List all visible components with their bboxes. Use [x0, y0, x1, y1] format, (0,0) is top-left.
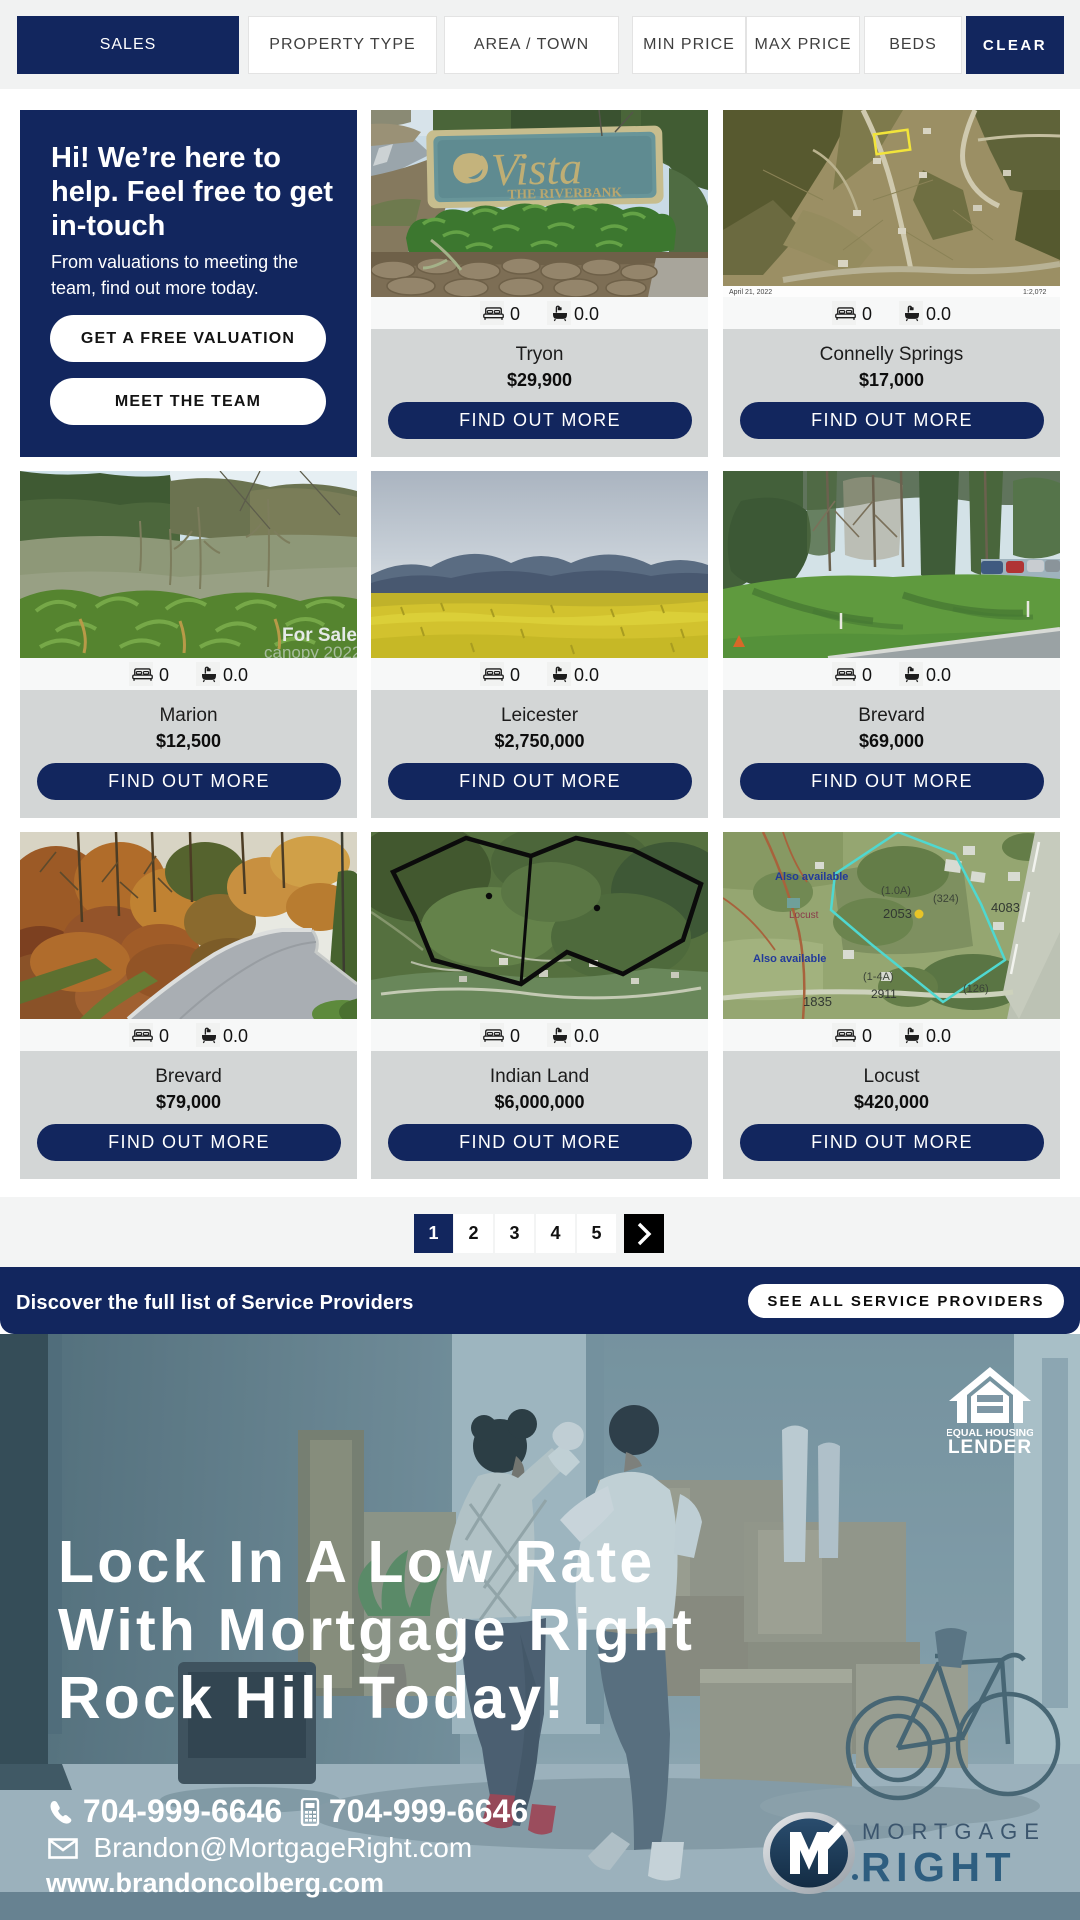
svg-text:Also available: Also available [775, 871, 848, 883]
svg-text:MORTGAGE: MORTGAGE [862, 1819, 1046, 1844]
svg-text:LENDER: LENDER [948, 1437, 1032, 1455]
svg-text:1835: 1835 [803, 994, 832, 1009]
svg-text:April 21, 2022: April 21, 2022 [729, 289, 772, 296]
svg-text:Locust: Locust [789, 910, 819, 921]
svg-text:1:2,0?2: 1:2,0?2 [1023, 289, 1046, 296]
svg-text:2911: 2911 [871, 987, 897, 1001]
svg-text:THE RIVERBANK: THE RIVERBANK [507, 184, 622, 201]
svg-text:(324): (324) [933, 893, 959, 905]
svg-text:2053: 2053 [883, 906, 912, 921]
svg-text:(126): (126) [963, 983, 989, 995]
svg-text:RIGHT: RIGHT [861, 1844, 1016, 1890]
svg-text:canopy 2022: canopy 2022 [264, 643, 357, 658]
svg-text:(1.0A): (1.0A) [881, 885, 911, 897]
svg-text:4083: 4083 [991, 900, 1020, 915]
svg-text:Also available: Also available [753, 953, 826, 965]
svg-text:(1-4A): (1-4A) [863, 971, 894, 983]
